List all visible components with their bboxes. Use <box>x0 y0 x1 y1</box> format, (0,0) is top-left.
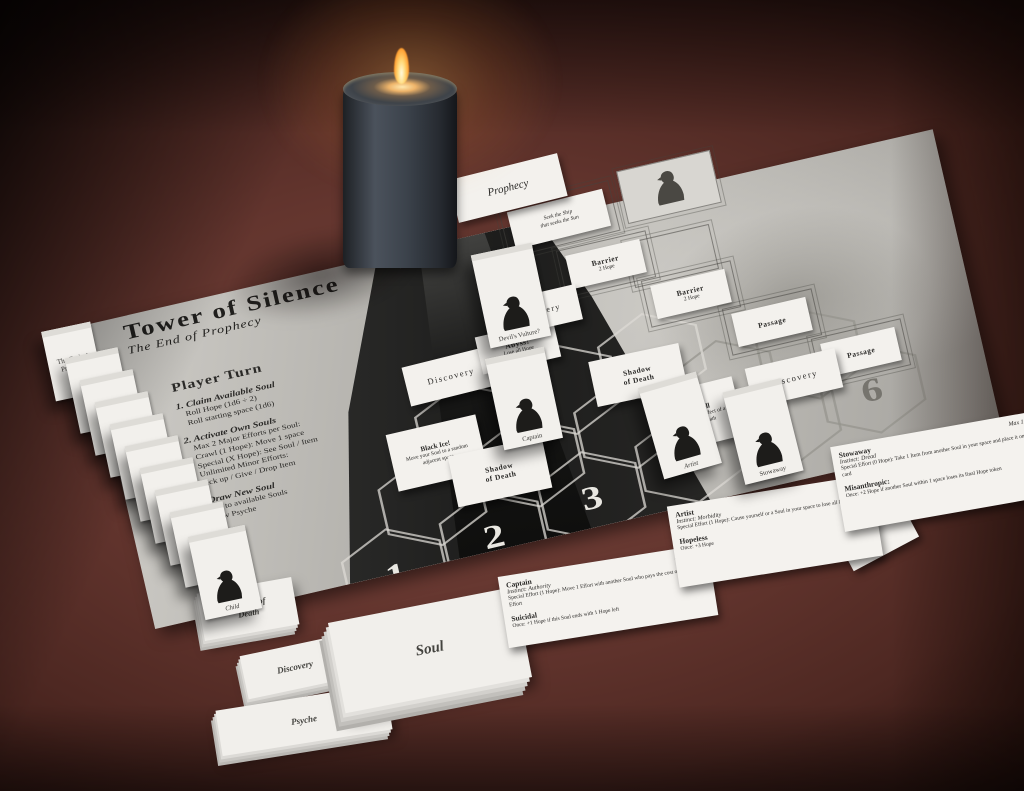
psyche-stack-label: Psyche <box>290 713 317 727</box>
bird-etching-icon <box>645 163 693 211</box>
candle-body <box>343 86 457 268</box>
tabletop-photo: { "board": { "title": "Tower of Silence"… <box>0 0 1024 791</box>
vulture-icon <box>660 417 709 466</box>
barrier-tile: Barrier 2 Hope <box>565 239 647 289</box>
hex-number: 1 <box>382 555 411 595</box>
soul-deck-label: Soul <box>414 639 445 661</box>
passage-label: Passage <box>757 314 787 329</box>
prophecy-card-label: Prophecy <box>486 177 529 199</box>
hex-number: 3 <box>578 478 607 518</box>
passage-tile: Passage <box>731 297 813 347</box>
hex-number: 2 <box>480 517 509 557</box>
child-label: Child <box>225 603 241 613</box>
barrier-tile: Barrier 2 Hope <box>650 269 732 319</box>
discovery-stack-label: Discovery <box>276 658 314 676</box>
passage-label: Passage <box>846 344 876 359</box>
candle-flame <box>394 48 409 84</box>
vulture-icon <box>205 563 250 608</box>
vulture-icon <box>504 391 551 438</box>
discovery-label: Discovery <box>426 365 475 386</box>
